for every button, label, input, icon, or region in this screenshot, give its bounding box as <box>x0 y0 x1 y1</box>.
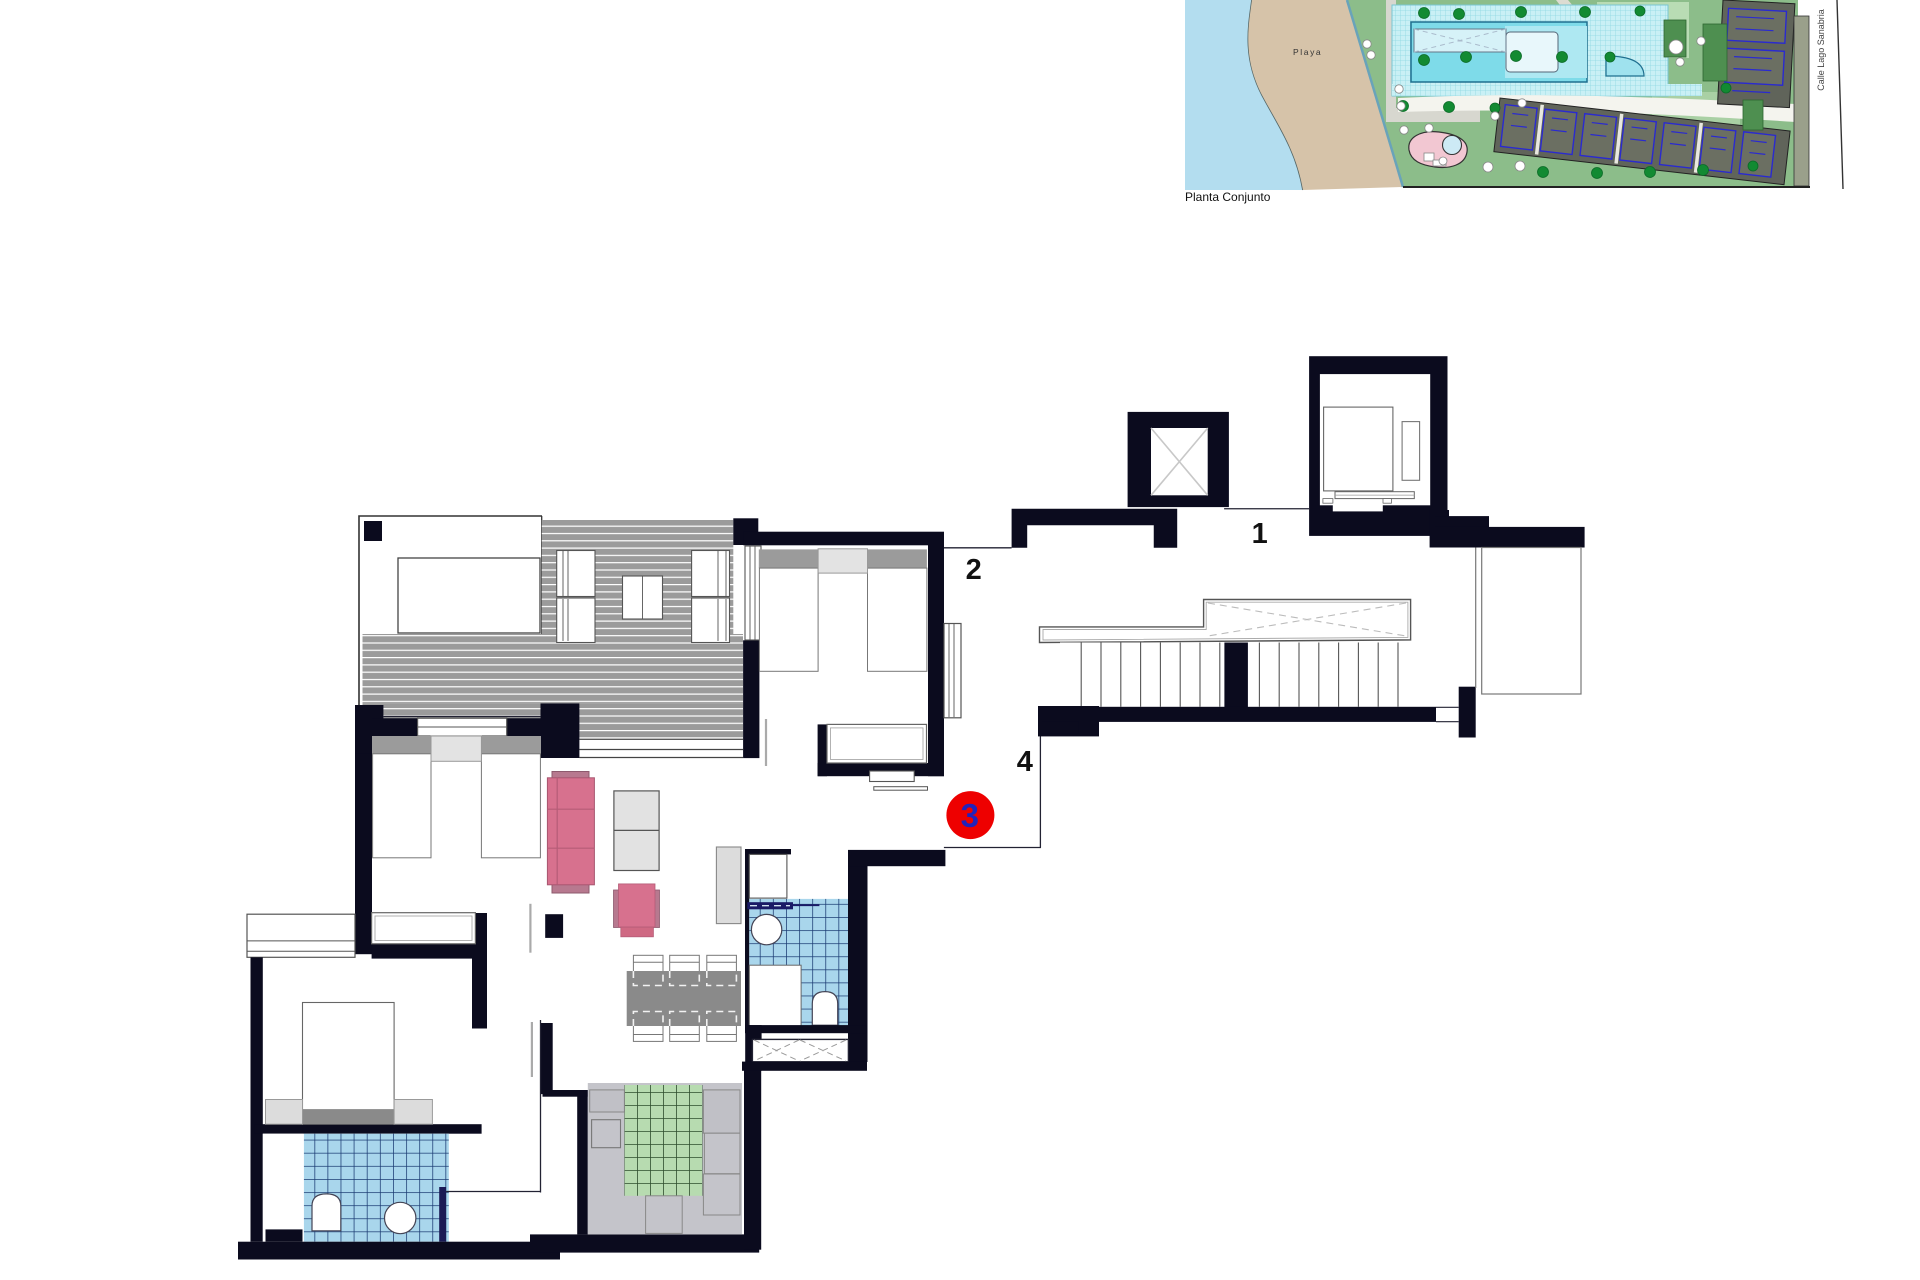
svg-text:Planta Conjunto: Planta Conjunto <box>1185 190 1271 204</box>
svg-text:Calle Lago Sanabria: Calle Lago Sanabria <box>1816 9 1826 91</box>
svg-text:Playa: Playa <box>1293 47 1322 57</box>
svg-text:2: 2 <box>966 554 982 586</box>
svg-text:3: 3 <box>961 797 979 834</box>
svg-text:4: 4 <box>1017 746 1033 778</box>
svg-text:1: 1 <box>1252 518 1268 550</box>
